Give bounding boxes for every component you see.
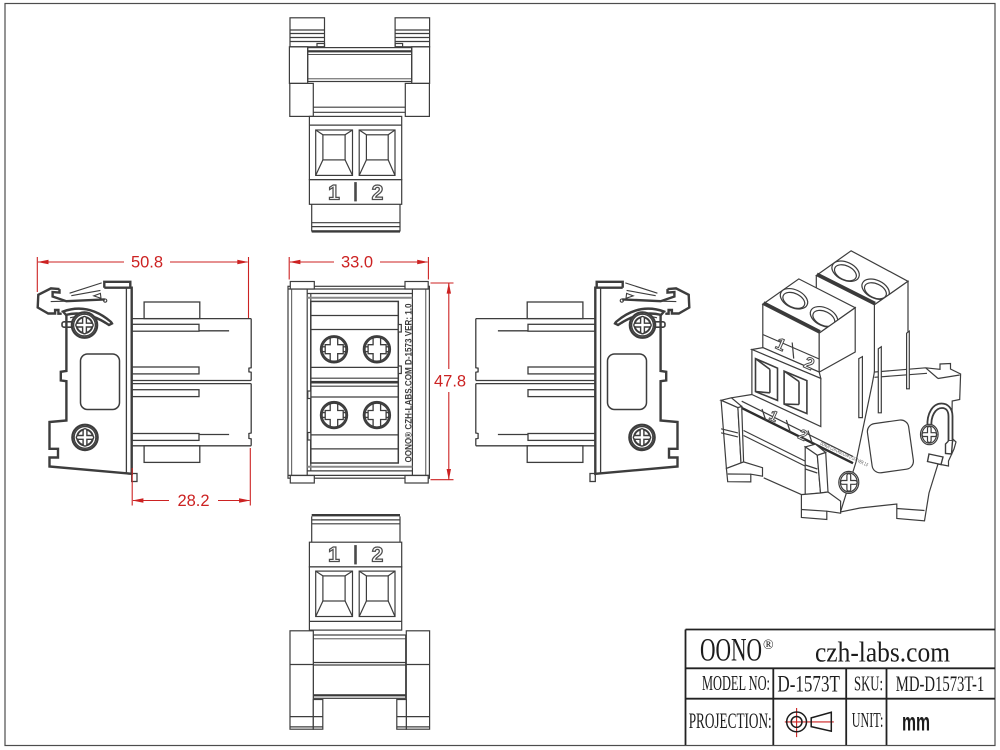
svg-text:1: 1	[328, 544, 340, 567]
svg-text:1: 1	[328, 182, 340, 205]
svg-text:D-1573T: D-1573T	[777, 672, 840, 697]
svg-text:47.8: 47.8	[434, 373, 466, 391]
svg-text:OONO: OONO	[700, 633, 762, 669]
svg-text:UNIT:: UNIT:	[852, 708, 884, 732]
svg-text:PROJECTION:: PROJECTION:	[689, 708, 772, 733]
svg-text:SKU:: SKU:	[854, 672, 883, 696]
svg-text:MD-D1573T-1: MD-D1573T-1	[896, 671, 985, 696]
svg-text:2: 2	[372, 182, 384, 205]
svg-text:mm: mm	[902, 708, 930, 736]
svg-text:28.2: 28.2	[177, 492, 209, 510]
svg-text:50.8: 50.8	[131, 254, 163, 272]
svg-text:2: 2	[372, 544, 384, 567]
svg-text:®: ®	[763, 638, 774, 653]
svg-text:33.0: 33.0	[341, 254, 373, 272]
svg-text:OONO® CZH-LABS.COM D-1573 VER:: OONO® CZH-LABS.COM D-1573 VER: 1.0	[403, 304, 414, 463]
svg-text:czh-labs.com: czh-labs.com	[815, 637, 950, 669]
svg-text:MODEL NO:: MODEL NO:	[702, 671, 770, 695]
